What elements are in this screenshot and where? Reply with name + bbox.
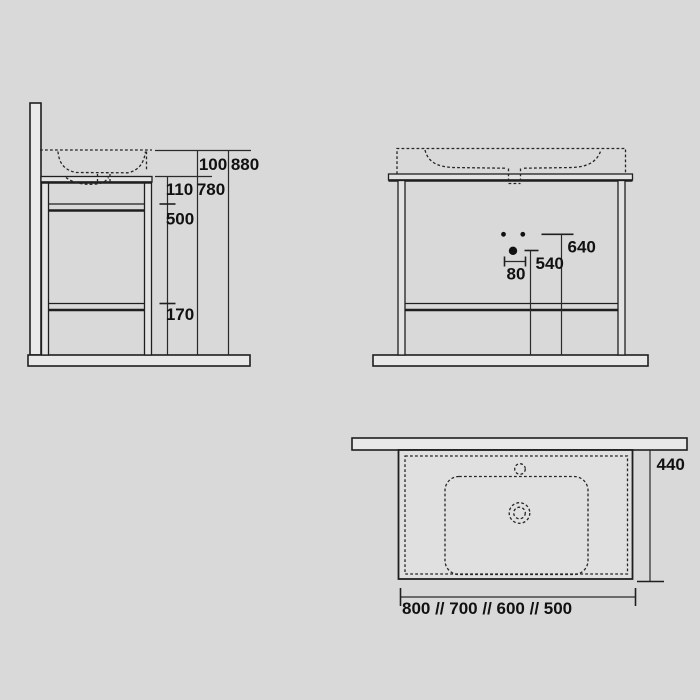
top-view: 440 800 // 700 // 600 // 500 [352,438,687,618]
frame-rear-leg [42,182,49,355]
wall-section [30,103,41,355]
lower-rail [49,304,145,311]
dimension-drawing: 100 880 110 780 500 170 [0,0,700,700]
frame-left-leg [398,181,405,356]
floor-section [28,355,250,366]
dim-label-110: 110 [166,180,193,199]
dim-label-80: 80 [507,265,526,284]
front-view: 640 540 80 [373,149,648,367]
supply-connection-left-dot [501,232,506,237]
frame-front-leg [145,182,152,355]
dim-label-widths: 800 // 700 // 600 // 500 [402,599,572,618]
dim-label-100: 100 [199,155,227,174]
upper-rail [49,204,145,211]
floor-section-front [373,355,648,366]
wall-section-plan [352,438,687,450]
supply-connection-right-dot [520,232,525,237]
dim-label-500: 500 [166,210,194,229]
technical-drawing-canvas: 100 880 110 780 500 170 [0,0,700,700]
dim-label-780: 780 [197,180,225,199]
side-view: 100 880 110 780 500 170 [28,103,259,366]
towel-rail-front [405,304,618,311]
dim-label-880: 880 [231,155,259,174]
dim-label-640: 640 [568,238,596,257]
console-plan-outline [399,450,633,579]
console-top-front [389,174,633,180]
console-top [41,177,152,183]
drain-connection-dot [509,247,517,255]
dim-label-540: 540 [536,254,564,273]
dim-label-440: 440 [657,455,685,474]
frame-right-leg [618,181,625,356]
dim-label-170: 170 [166,305,194,324]
